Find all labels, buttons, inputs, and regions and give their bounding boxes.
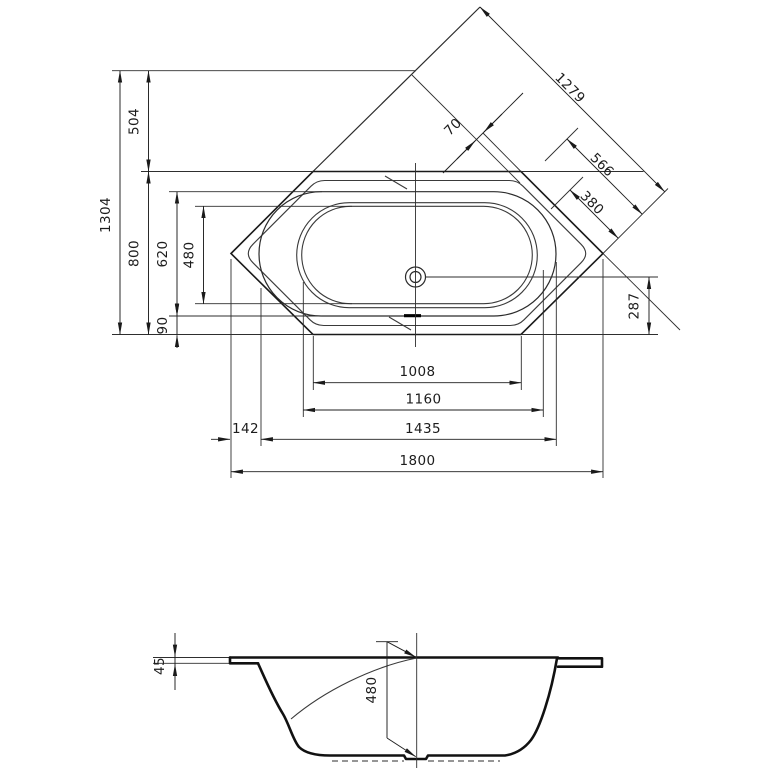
bathtub-outline [231, 172, 603, 335]
tub-basin-outer-oval [297, 203, 538, 308]
dim-label-504: 504 [127, 108, 143, 135]
rim-step-mark-bottom [389, 317, 411, 330]
section-view: 45 480 [152, 633, 602, 768]
dimension-1008: 1008 [313, 364, 521, 383]
dim-label-1435: 1435 [405, 421, 441, 437]
dim-label-90: 90 [155, 317, 171, 335]
dimension-90: 90 [155, 303, 177, 349]
technical-drawing-page: 1304 504 800 620 480 90 287 [0, 0, 772, 772]
dim-arrow-70-upper [484, 114, 502, 132]
dim-label-1800: 1800 [400, 453, 436, 469]
section-far-wall-curve [291, 658, 417, 719]
dim-oblique-480-bottom [387, 738, 416, 757]
dimension-504: 504 [127, 71, 149, 172]
dim-label-566: 566 [587, 150, 617, 180]
rim-step-mark-top [385, 176, 407, 189]
dim-label-1279: 1279 [551, 70, 588, 107]
plan-view: 1304 504 800 620 480 90 287 [98, 7, 680, 478]
dimension-380: 380 [551, 177, 618, 238]
bathtub-technical-drawing: 1304 504 800 620 480 90 287 [0, 0, 772, 772]
dimension-1279: 1279 [480, 7, 665, 192]
bottom-right-edge-extension [603, 189, 668, 254]
dim-label-1008: 1008 [400, 364, 436, 380]
rim-edge-extension-line [412, 75, 520, 183]
dimension-800: 800 [127, 172, 149, 335]
dim-label-1304: 1304 [98, 197, 114, 233]
dimension-45-section: 45 [152, 633, 175, 690]
dimension-1800: 1800 [231, 453, 603, 472]
dim-label-287: 287 [627, 293, 643, 320]
dim-label-380: 380 [577, 188, 607, 218]
ext-stub-380 [551, 177, 583, 209]
dimension-1435: 1435 [261, 421, 556, 440]
dim-arrow-70-lower [457, 141, 475, 159]
dimension-1304: 1304 [98, 71, 120, 335]
dim-label-70: 70 [441, 115, 465, 139]
dim-label-480-plan: 480 [182, 242, 198, 269]
dimension-1160: 1160 [303, 392, 543, 411]
corner-wall-left-line [313, 7, 480, 172]
dim-label-620: 620 [155, 241, 171, 268]
dimension-620: 620 [155, 192, 177, 316]
dim-oblique-480-top [387, 642, 416, 657]
dim-label-480-section: 480 [364, 677, 380, 704]
dim-label-800: 800 [127, 240, 143, 267]
section-right-lip [558, 658, 602, 666]
dimension-480-section: 480 [364, 642, 416, 757]
dim-label-142: 142 [232, 421, 259, 437]
dimension-142: 142 [211, 421, 259, 440]
dimension-480-plan: 480 [182, 206, 204, 303]
section-tub-profile [258, 658, 557, 759]
dim-label-1160: 1160 [406, 392, 442, 408]
dim-label-45: 45 [152, 657, 168, 675]
dimension-287: 287 [627, 277, 650, 335]
tub-basin-inner-oval [302, 206, 533, 303]
